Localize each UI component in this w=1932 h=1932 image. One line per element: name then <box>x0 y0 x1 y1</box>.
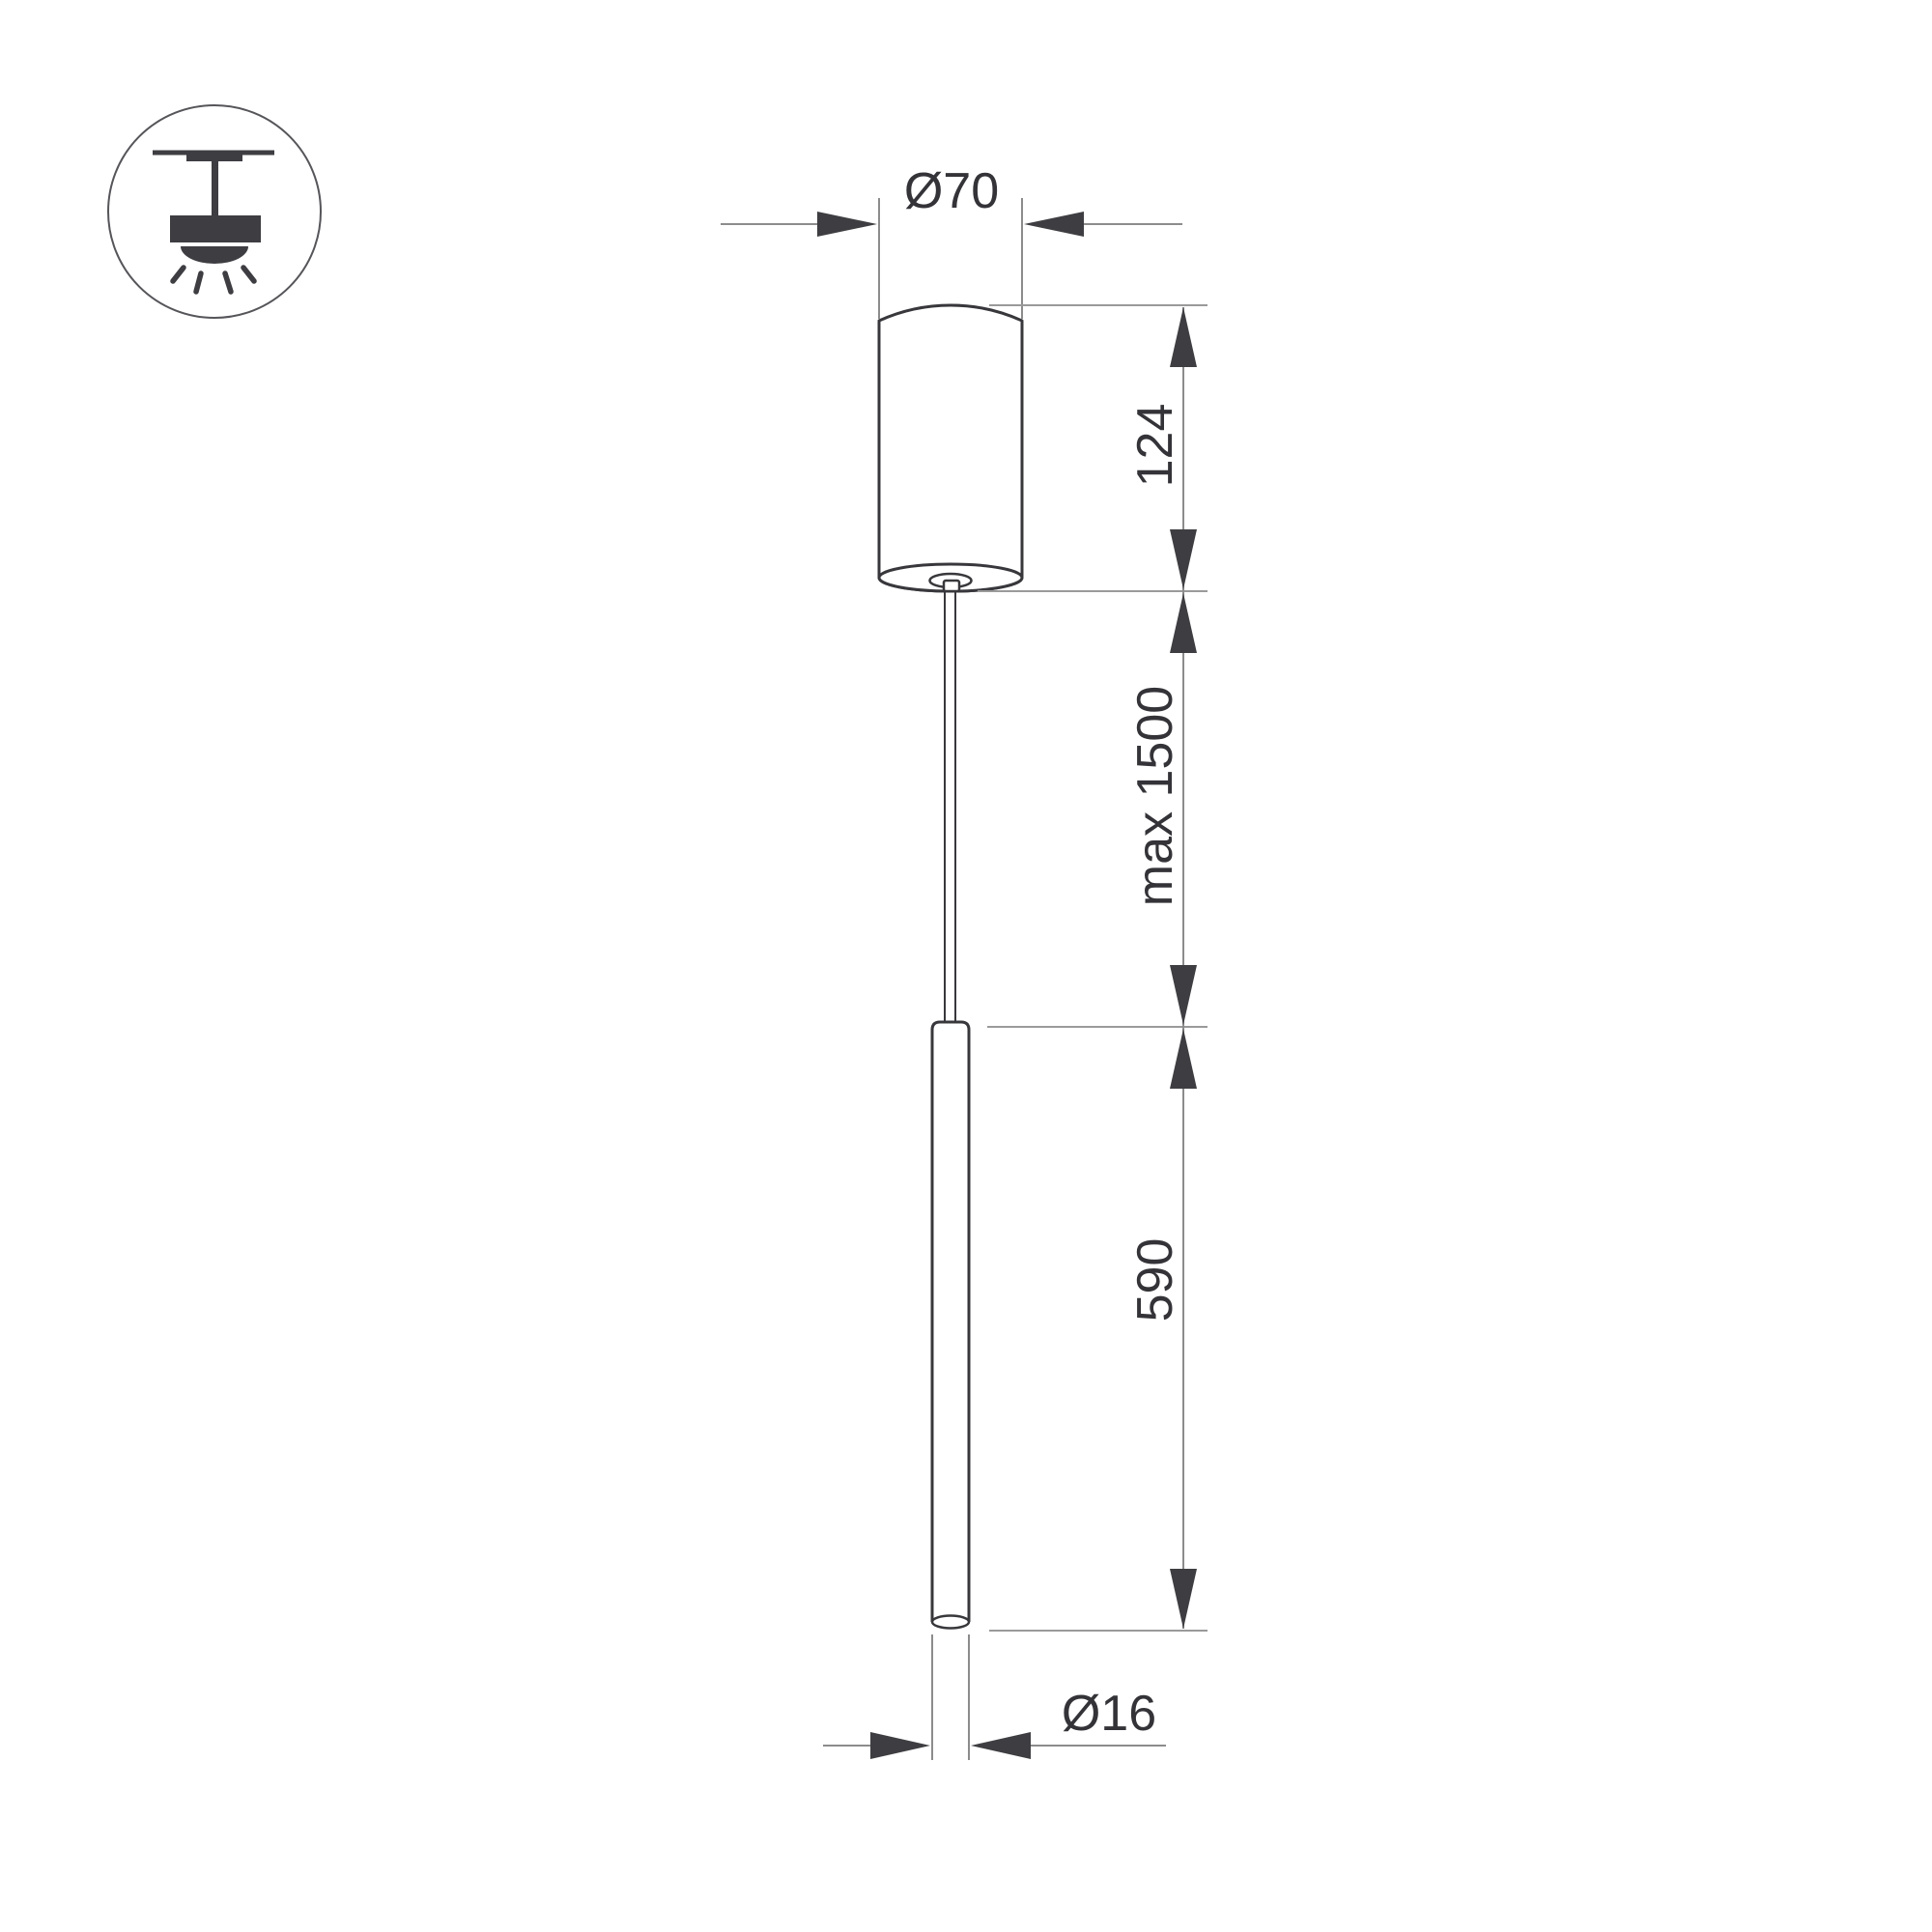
lamp-tube-bottom-rim <box>932 1616 969 1629</box>
light-ray-icon <box>243 268 254 281</box>
lamp-tube <box>932 1022 969 1622</box>
arrow-left-icon <box>1024 212 1084 237</box>
icon-light-rays <box>173 268 254 292</box>
suspension-wire <box>945 589 955 1026</box>
dimension-tube-diameter: Ø16 <box>823 1634 1166 1760</box>
icon-suspension-rod <box>212 158 218 217</box>
arrow-down-icon <box>1170 965 1197 1025</box>
arrow-right-icon <box>870 1732 930 1759</box>
arrow-down-icon <box>1170 529 1197 589</box>
wire-connector-stem <box>944 581 959 591</box>
arrow-up-icon <box>1170 307 1197 367</box>
label-suspension-length: max 1500 <box>1127 686 1183 906</box>
label-canopy-height: 124 <box>1127 404 1183 488</box>
icon-light-dome <box>181 246 248 264</box>
label-tube-diameter: Ø16 <box>1062 1686 1156 1742</box>
pendant-lamp-drawing-canvas: Ø70 124 max 1500 590 Ø16 <box>0 0 1932 1932</box>
fixture-drawing <box>879 305 1022 1629</box>
technical-drawing-page: Ø70 124 max 1500 590 Ø16 <box>0 0 1932 1932</box>
light-ray-icon <box>225 273 231 292</box>
arrow-right-icon <box>817 212 877 237</box>
light-ray-icon <box>196 273 201 292</box>
ceiling-pendant-mount-icon <box>108 105 321 318</box>
icon-lamp-body <box>170 215 261 242</box>
canopy-body <box>879 305 1022 591</box>
arrow-up-icon <box>1170 1029 1197 1089</box>
arrow-up-icon <box>1170 593 1197 653</box>
arrow-down-icon <box>1170 1569 1197 1629</box>
label-tube-length: 590 <box>1127 1238 1183 1322</box>
label-canopy-diameter: Ø70 <box>904 163 999 219</box>
arrow-left-icon <box>971 1732 1031 1759</box>
light-ray-icon <box>173 268 184 281</box>
dimension-canopy-diameter: Ø70 <box>721 163 1182 319</box>
